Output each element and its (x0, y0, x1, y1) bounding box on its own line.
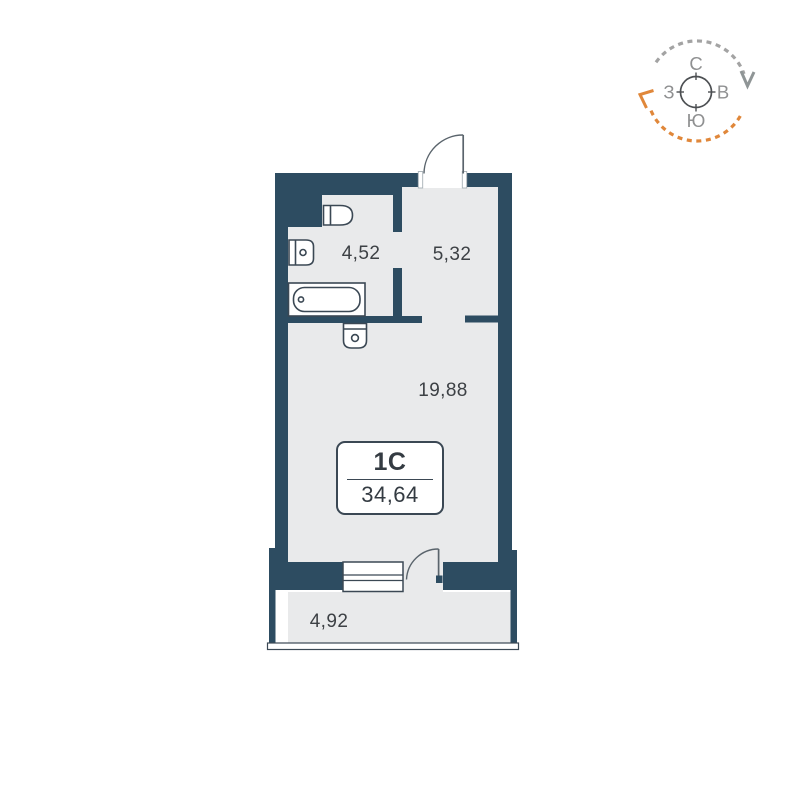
wall-pier-bathroom (288, 187, 322, 227)
window-fixture (343, 562, 403, 592)
wall-balcony-left (269, 548, 276, 643)
sink-drain (352, 335, 359, 342)
unit-divider (347, 479, 433, 480)
floor-plan-page: С Ю З В 4,52 5,32 19,88 4,92 1С 34,64 (0, 0, 787, 787)
bathtub-drain (298, 297, 303, 302)
wall-bottom-left (269, 562, 343, 590)
balcony-door-hinge (436, 576, 443, 584)
entrance-door-opening (423, 172, 463, 189)
unit-type-label: 1С (374, 449, 407, 477)
compass-west-label: З (663, 82, 674, 103)
wall-bottom-right (443, 562, 516, 590)
compass-north-label: С (689, 53, 702, 74)
wall-bathroom-hall-lower (393, 268, 402, 316)
compass-circle (681, 77, 712, 108)
room-label-living-room: 19,88 (418, 380, 468, 402)
entrance-door-jamb-right (462, 172, 466, 189)
unit-total-area: 34,64 (361, 482, 419, 507)
compass-arrow-gray-icon (741, 71, 754, 86)
toilet-fixture (324, 206, 353, 226)
wall-balcony-right (511, 550, 518, 643)
wall-left (275, 173, 288, 590)
room-label-hallway: 5,32 (433, 244, 472, 266)
wall-top-left (275, 173, 419, 187)
wall-bathroom-hall-upper (393, 187, 402, 232)
wall-right (498, 173, 512, 590)
compass-arrow-orange-icon (640, 91, 654, 109)
room-label-balcony: 4,92 (310, 611, 349, 633)
entrance-door-arc (424, 135, 463, 174)
wall-stub-hall-livingroom (465, 316, 498, 323)
room-label-bathroom: 4,52 (342, 243, 381, 265)
wall-strip-bathroom-top (322, 187, 400, 195)
floor-plan-canvas: С Ю З В (0, 0, 787, 787)
compass-south-label: Ю (687, 110, 706, 131)
entrance-door (418, 135, 466, 188)
entrance-door-jamb-left (418, 172, 422, 189)
wall-bathroom-bottom (275, 316, 422, 323)
sink-unit (344, 324, 367, 349)
compass-east-label: В (717, 82, 729, 103)
compass-rose: С Ю З В (640, 41, 754, 141)
unit-info-badge: 1С 34,64 (336, 441, 444, 515)
washbasin-drain (300, 250, 306, 256)
balcony-glazing (268, 643, 519, 650)
